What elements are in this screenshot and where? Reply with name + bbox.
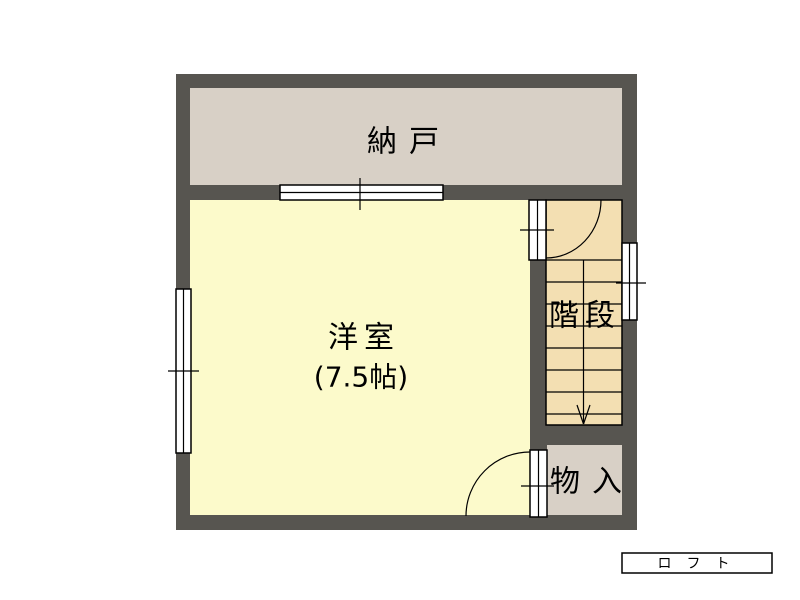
room-label-nando: 納戸 xyxy=(367,125,451,160)
floor-plan-svg: 納戸 洋室 (7.5帖) 階段 物入 ロフト xyxy=(0,0,800,600)
room-label-monoire: 物入 xyxy=(550,465,634,500)
room-yoshitsu xyxy=(190,200,530,515)
room-label-kaidan: 階段 xyxy=(549,299,621,334)
room-size-yoshitsu: (7.5帖) xyxy=(314,361,408,394)
room-label-yoshitsu: 洋室 xyxy=(328,321,400,356)
loft-caption-label: ロフト xyxy=(658,556,745,572)
loft-caption: ロフト xyxy=(622,553,772,573)
